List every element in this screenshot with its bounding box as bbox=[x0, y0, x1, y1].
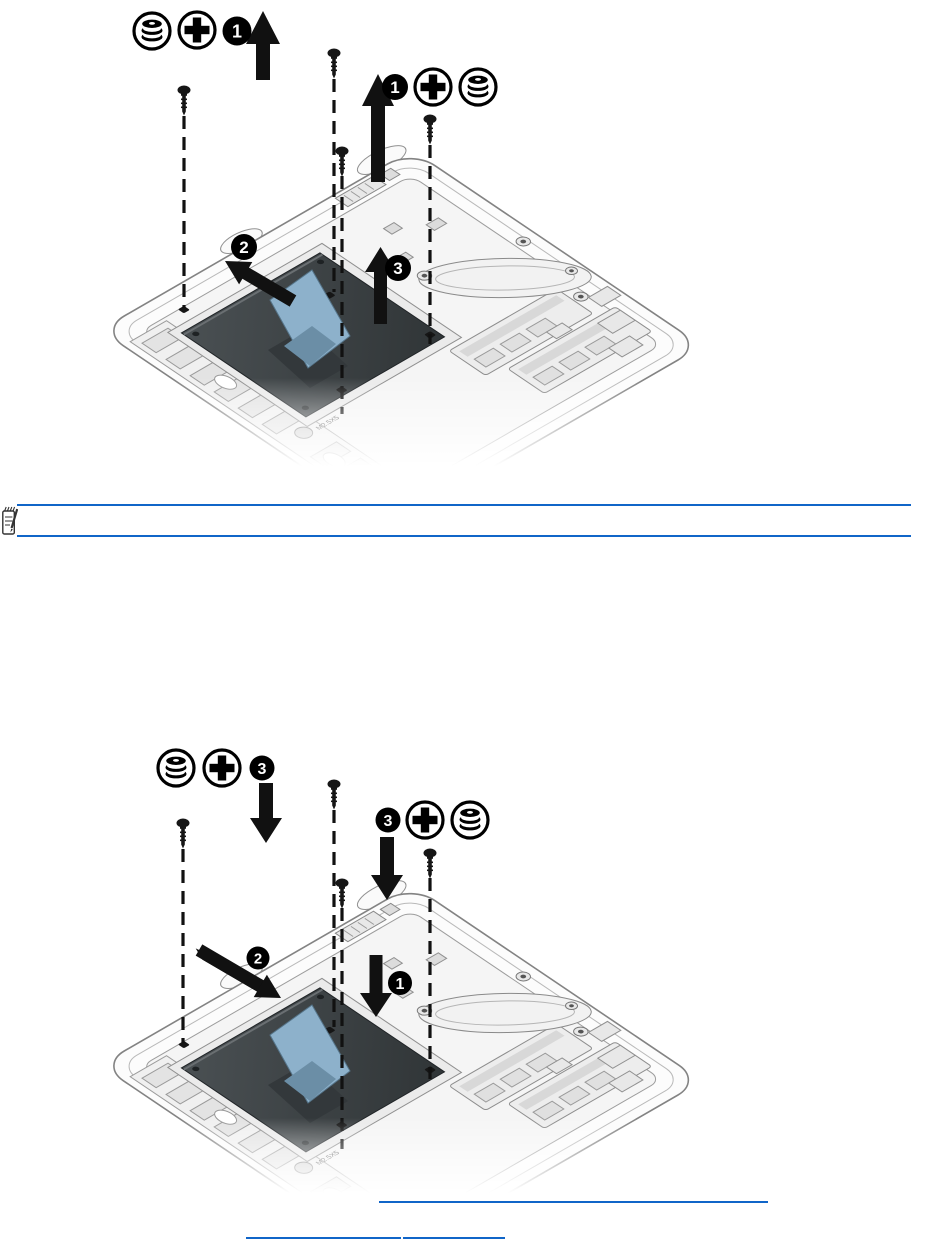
callout-2: 2 bbox=[239, 238, 248, 257]
legend-step-number: 1 bbox=[232, 21, 242, 41]
callout-3: 3 bbox=[393, 259, 402, 278]
figure-hard-drive-installation: 2 1 3 3 bbox=[0, 735, 930, 1195]
cross-reference-link[interactable] bbox=[246, 1237, 401, 1239]
callout-1: 1 bbox=[396, 976, 405, 993]
manual-page: M2.5X5 bbox=[0, 0, 930, 1241]
legend-remove-left: 1 bbox=[134, 12, 252, 49]
cross-reference-link[interactable] bbox=[403, 1237, 505, 1239]
arrow-down-legend-left bbox=[250, 783, 282, 843]
callout-2: 2 bbox=[254, 950, 262, 967]
legend-step-number: 3 bbox=[384, 813, 393, 830]
legend-step-number: 3 bbox=[258, 761, 267, 778]
legend-step-number: 1 bbox=[390, 78, 399, 97]
arrow-up-legend-left bbox=[246, 11, 280, 80]
figure-hard-drive-removal: M2.5X5 bbox=[0, 0, 930, 485]
legend-install-left: 3 bbox=[158, 750, 275, 786]
note-box bbox=[17, 504, 911, 537]
cross-reference-link[interactable] bbox=[379, 1201, 768, 1203]
note-icon bbox=[2, 506, 18, 536]
legend-remove-right: 1 bbox=[382, 69, 496, 105]
legend-install-right: 3 bbox=[376, 802, 489, 838]
